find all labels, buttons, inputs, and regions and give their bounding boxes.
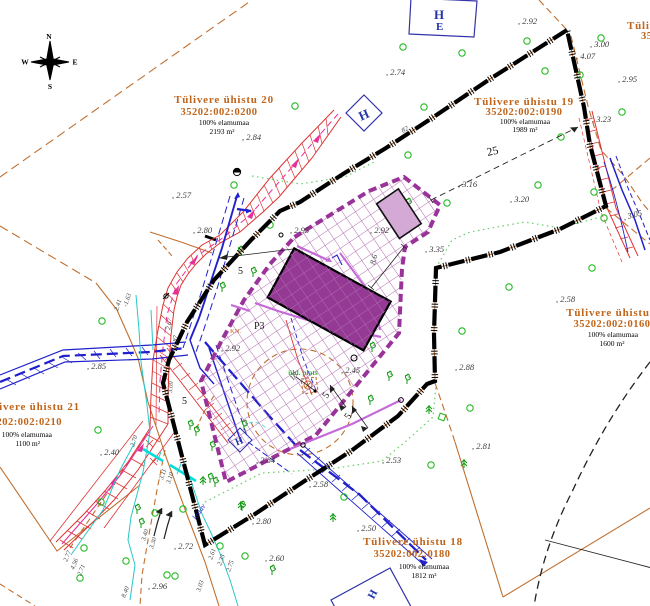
svg-text:100% elamumaa: 100% elamumaa [2,430,53,439]
svg-text:, 2.84: , 2.84 [256,455,276,465]
svg-text:üld. plats: üld. plats [288,368,318,377]
svg-text:35202:002:0150: 35202:002:0150 [641,31,650,42]
svg-text:, 3.23: , 3.23 [592,114,611,124]
svg-text:Tülivere ühistu 21: Tülivere ühistu 21 [0,401,80,413]
svg-text:2193 m²: 2193 m² [210,127,236,136]
svg-text:, 2.85: , 2.85 [87,361,106,371]
svg-text:, 2.50: , 2.50 [357,523,377,533]
svg-text:35202:002:0200: 35202:002:0200 [181,107,258,118]
svg-text:, 4.07: , 4.07 [576,51,596,61]
svg-text:E: E [72,58,77,67]
svg-text:, 2.40: , 2.40 [100,447,120,457]
svg-text:, 2.88: , 2.88 [455,362,475,372]
svg-text:, 2.72: , 2.72 [174,541,194,551]
svg-text:, 2.53: , 2.53 [382,455,401,465]
svg-text:Tülivere ühistu: Tülivere ühistu [566,307,650,319]
svg-text:, 2.74: , 2.74 [386,67,406,77]
svg-text:, 2.92: , 2.92 [370,225,390,235]
svg-text:, 2.95: , 2.95 [618,74,637,84]
svg-text:, 3.35: , 3.35 [425,244,444,254]
svg-text:35202:002:0210: 35202:002:0210 [0,417,62,428]
svg-text:, 2.84: , 2.84 [242,132,262,142]
svg-text:, 3.00: , 3.00 [590,39,610,49]
svg-text:5: 5 [238,266,243,277]
svg-text:W: W [21,58,29,67]
svg-text:S: S [48,82,52,91]
svg-text:, 2.45: , 2.45 [341,365,360,375]
svg-text:100% elamumaa: 100% elamumaa [199,118,250,127]
svg-text:, 2.80: , 2.80 [252,516,272,526]
svg-text:1600 m²: 1600 m² [600,339,626,348]
svg-text:3.09: 3.09 [167,380,175,394]
svg-text:100% elamumaa: 100% elamumaa [588,330,639,339]
svg-text:, 2.81: , 2.81 [472,441,491,451]
svg-text:KN.: KN. [230,328,241,335]
svg-text:, 2.58: , 2.58 [309,479,329,489]
svg-text:, 2.57: , 2.57 [172,190,192,200]
svg-text:, 2.80: , 2.80 [193,225,213,235]
svg-text:P3: P3 [254,321,265,332]
svg-text:, 3.16: , 3.16 [458,179,478,189]
svg-text:1100 m²: 1100 m² [15,439,40,448]
svg-text:1989 m²: 1989 m² [513,125,539,134]
svg-text:E: E [436,21,443,33]
svg-text:35202:002:0160: 35202:002:0160 [574,319,650,330]
svg-text:, 2.92: , 2.92 [221,343,241,353]
svg-text:, 3.20: , 3.20 [510,194,530,204]
svg-text:Tülivere ühistu 18: Tülivere ühistu 18 [363,536,463,548]
svg-text:, 2.96: , 2.96 [148,581,168,591]
svg-text:H: H [434,7,444,22]
svg-text:N: N [46,32,52,41]
svg-text:1812 m²: 1812 m² [412,571,438,580]
svg-text:Tülivere ühistu 20: Tülivere ühistu 20 [174,94,274,106]
svg-text:5: 5 [182,396,187,407]
svg-text:, 2.60: , 2.60 [265,553,285,563]
svg-text:100% elamumaa: 100% elamumaa [399,562,450,571]
svg-text:, 2.95: , 2.95 [290,225,309,235]
svg-text:35202:002:0180: 35202:002:0180 [374,549,451,560]
svg-text:, 2.58: , 2.58 [556,294,576,304]
svg-text:, 2.92: , 2.92 [518,16,538,26]
